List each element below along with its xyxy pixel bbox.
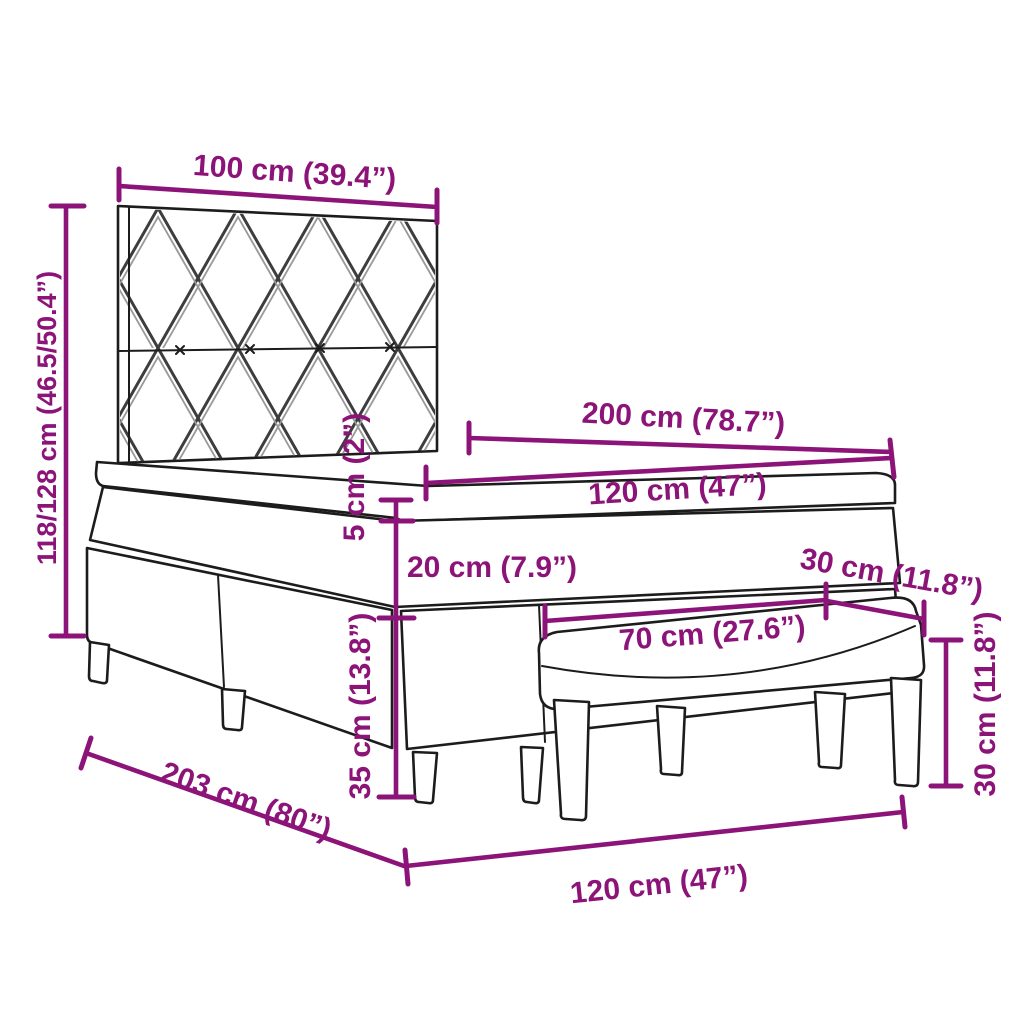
dimension-diagram: 100 cm (39.4”) 118/128 cm (46.5/50.4”) 2… <box>0 0 1024 1024</box>
dim-label-mattress-height: 20 cm (7.9”) <box>407 551 577 584</box>
dim-label-total-length: 203 cm (80”) <box>157 756 336 847</box>
dim-label-bed-length: 200 cm (78.7”) <box>581 397 786 441</box>
headboard <box>118 206 437 463</box>
dim-headboard-height: 118/128 cm (46.5/50.4”) <box>32 206 84 636</box>
dim-footprint-width: 120 cm (47”) <box>405 797 905 910</box>
dim-label-bench-height: 30 cm (11.8”) <box>969 611 1002 796</box>
dim-label-headboard-height: 118/128 cm (46.5/50.4”) <box>32 271 62 565</box>
dim-label-headboard-width: 100 cm (39.4”) <box>192 149 397 196</box>
dim-bench-height: 30 cm (11.8”) <box>931 611 1002 796</box>
headboard-pattern-bottom <box>120 348 435 462</box>
bed-diagram-svg: 100 cm (39.4”) 118/128 cm (46.5/50.4”) 2… <box>0 0 1024 1024</box>
dim-label-footprint-width: 120 cm (47”) <box>569 859 750 910</box>
dim-label-topper-height: 5 cm (2”) <box>338 413 371 541</box>
dim-bed-length: 200 cm (78.7”) <box>469 397 891 453</box>
dim-label-base-height: 35 cm (13.8”) <box>344 613 377 800</box>
headboard-pattern-top <box>120 208 435 351</box>
